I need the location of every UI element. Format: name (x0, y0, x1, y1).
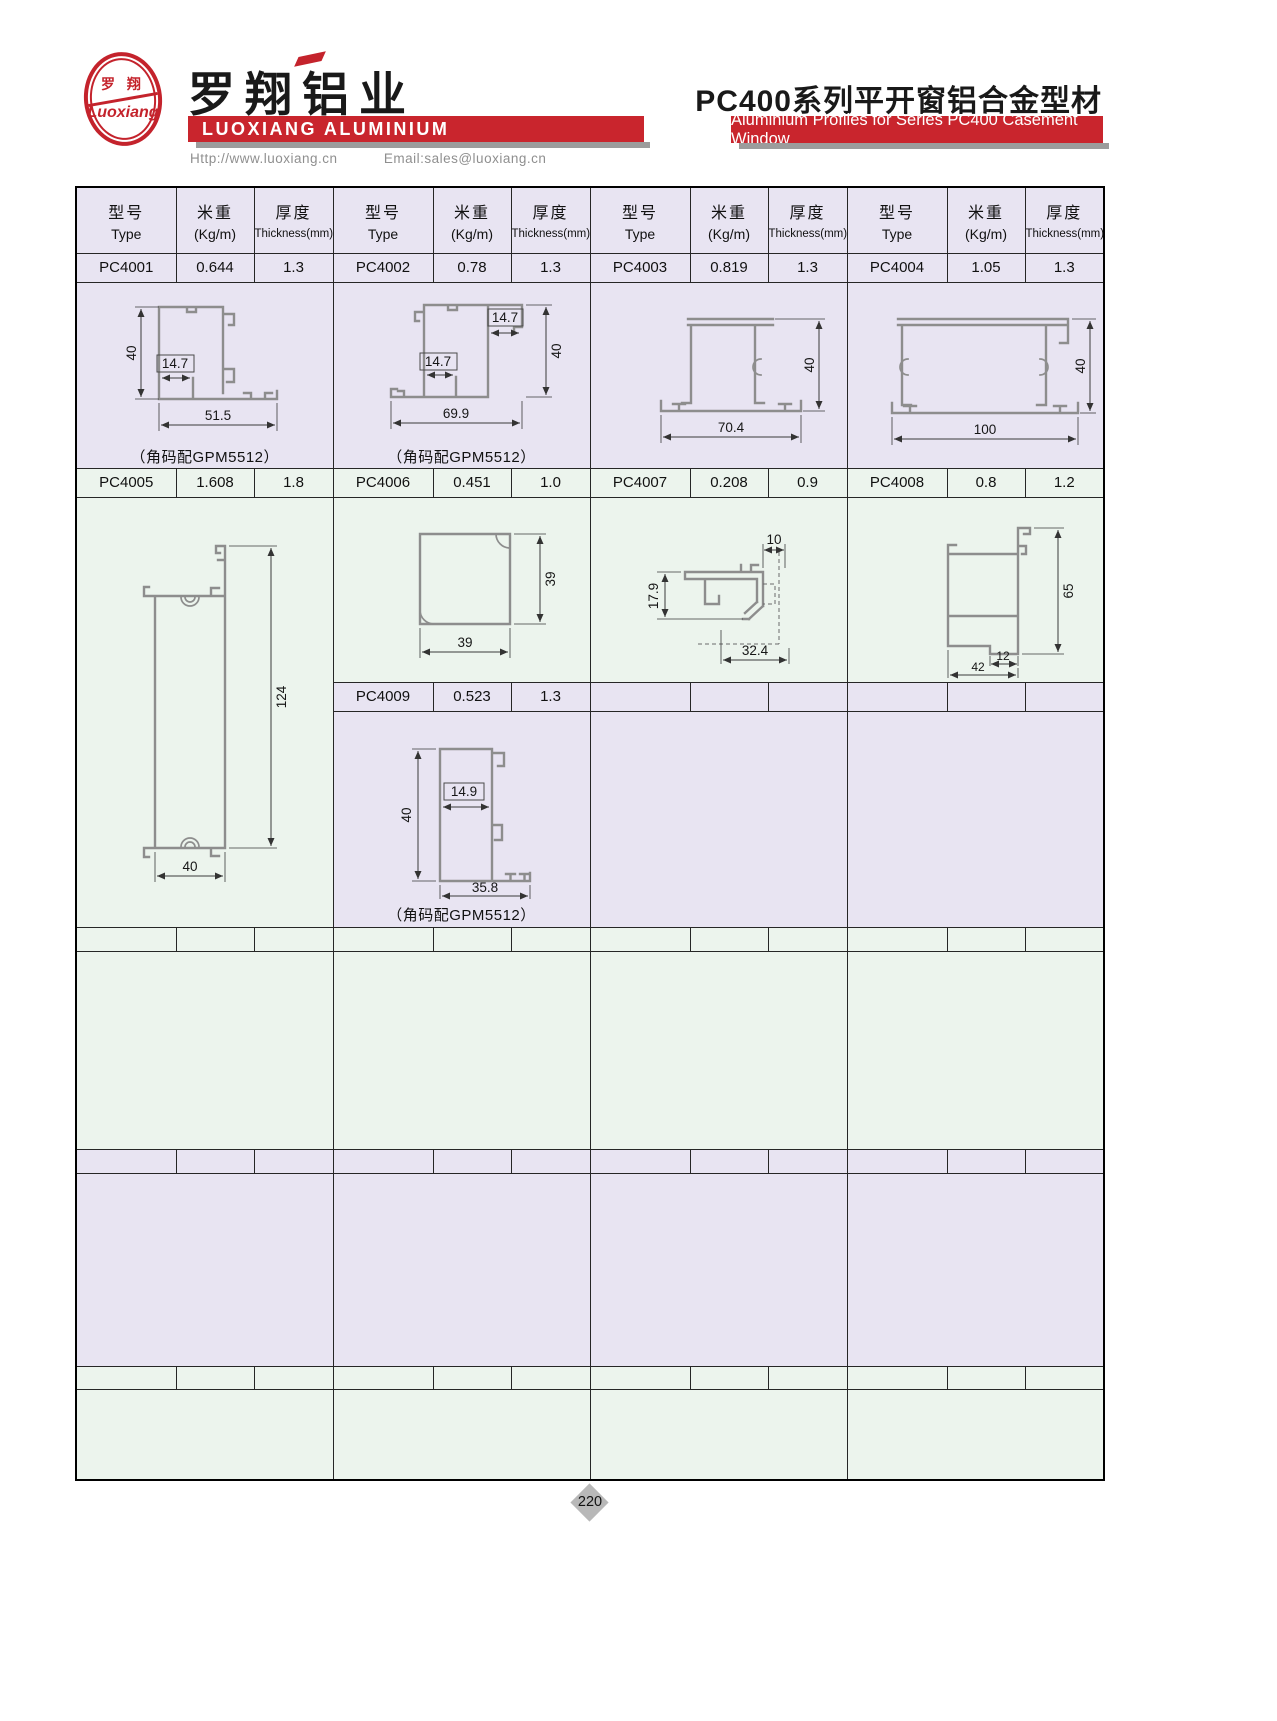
cell-thickness: 1.0 (511, 468, 590, 497)
svg-text:14.9: 14.9 (451, 784, 477, 799)
col-header-weight: 米重(Kg/m) (433, 187, 511, 253)
cell-empty (690, 682, 768, 711)
svg-text:124: 124 (274, 685, 289, 708)
cell-empty (947, 682, 1025, 711)
cell-weight: 0.819 (690, 253, 768, 282)
drawing-caption: （角码配GPM5512） (77, 446, 333, 467)
empty-drawing-row (76, 951, 1104, 1149)
email-address: Email:sales@luoxiang.cn (384, 151, 547, 166)
svg-text:40: 40 (399, 807, 414, 822)
col-header-thickness: 厚度Thickness(mm) (768, 187, 847, 253)
empty-drawing-row (76, 1173, 1104, 1366)
svg-text:39: 39 (543, 571, 558, 586)
svg-text:12: 12 (996, 649, 1010, 663)
empty-strip-row (76, 927, 1104, 951)
drawing-pc4004: 40 100 (847, 282, 1104, 468)
cell-type: PC4009 (333, 682, 433, 711)
cell-thickness: 1.2 (1025, 468, 1104, 497)
cell-thickness: 1.8 (254, 468, 333, 497)
svg-text:39: 39 (457, 635, 472, 650)
contact-line: Http://www.luoxiang.cn Email:sales@luoxi… (190, 151, 546, 166)
empty-drawing-row (76, 1389, 1104, 1480)
company-name-cn: 罗翔铝业 (188, 56, 416, 125)
drawing-pc4007: 17.9 10 32.4 (590, 497, 847, 682)
page-number: 220 (566, 1494, 614, 1510)
cell-weight: 1.608 (176, 468, 254, 497)
cell-type: PC4004 (847, 253, 947, 282)
cell-thickness: 1.3 (511, 253, 590, 282)
col-header-weight: 米重(Kg/m) (690, 187, 768, 253)
svg-text:70.4: 70.4 (718, 420, 745, 435)
cell-weight: 1.05 (947, 253, 1025, 282)
svg-text:35.8: 35.8 (472, 880, 498, 895)
col-header-thickness: 厚度Thickness(mm) (1025, 187, 1104, 253)
data-row-2: PC4005 1.608 1.8 PC4006 0.451 1.0 PC4007… (76, 468, 1104, 497)
svg-text:32.4: 32.4 (742, 643, 769, 658)
drawing-empty (590, 711, 847, 927)
cell-type: PC4008 (847, 468, 947, 497)
drawing-caption: （角码配GPM5512） (334, 446, 590, 467)
catalog-page: 罗 翔 Luoxiang 罗翔铝业 LUOXIANG ALUMINIUM Htt… (0, 0, 1277, 1721)
svg-text:100: 100 (973, 422, 996, 437)
svg-text:17.9: 17.9 (646, 582, 661, 608)
svg-text:14.7: 14.7 (162, 356, 188, 371)
table-header-row: 型号Type 米重(Kg/m) 厚度Thickness(mm) 型号Type 米… (76, 187, 1104, 253)
svg-text:14.7: 14.7 (425, 354, 451, 369)
col-header-type: 型号Type (590, 187, 690, 253)
col-header-weight: 米重(Kg/m) (176, 187, 254, 253)
logo-script-text: Luoxiang (84, 104, 162, 122)
cell-type: PC4002 (333, 253, 433, 282)
sub-bar-shadow (739, 143, 1109, 149)
cell-empty (847, 682, 947, 711)
en-bar-shadow (196, 142, 650, 148)
drawing-row-2: 124 40 39 39 (76, 497, 1104, 682)
website-url: Http://www.luoxiang.cn (190, 151, 338, 166)
col-header-type: 型号Type (333, 187, 433, 253)
drawing-caption: （角码配GPM5512） (334, 904, 590, 925)
empty-strip-row (76, 1366, 1104, 1389)
drawing-pc4003: 40 70.4 (590, 282, 847, 468)
svg-text:40: 40 (183, 859, 198, 874)
col-header-type: 型号Type (76, 187, 176, 253)
cell-weight: 0.523 (433, 682, 511, 711)
drawing-pc4005: 124 40 (76, 497, 333, 927)
svg-text:40: 40 (124, 345, 139, 360)
cell-weight: 0.78 (433, 253, 511, 282)
cell-type: PC4001 (76, 253, 176, 282)
svg-text:40: 40 (1073, 358, 1088, 373)
col-header-weight: 米重(Kg/m) (947, 187, 1025, 253)
cell-empty (590, 682, 690, 711)
logo-cn-text: 罗 翔 (84, 74, 162, 94)
cell-thickness: 1.3 (1025, 253, 1104, 282)
cell-type: PC4006 (333, 468, 433, 497)
series-subtitle-en: Aluminium Profiles for Series PC400 Case… (731, 116, 1103, 143)
drawing-pc4001: 40 14.7 51.5 （角码配GPM5512） (76, 282, 333, 468)
drawing-pc4008: 65 12 42 (847, 497, 1104, 682)
svg-text:42: 42 (971, 660, 985, 674)
svg-text:40: 40 (802, 357, 817, 372)
svg-text:10: 10 (766, 532, 781, 547)
drawing-pc4006: 39 39 (333, 497, 590, 682)
cell-weight: 0.208 (690, 468, 768, 497)
cell-empty (1025, 682, 1104, 711)
cell-thickness: 1.3 (254, 253, 333, 282)
cell-empty (768, 682, 847, 711)
cell-thickness: 1.3 (511, 682, 590, 711)
cell-weight: 0.451 (433, 468, 511, 497)
svg-text:51.5: 51.5 (205, 408, 231, 423)
cell-type: PC4007 (590, 468, 690, 497)
cell-thickness: 1.3 (768, 253, 847, 282)
profile-spec-table: 型号Type 米重(Kg/m) 厚度Thickness(mm) 型号Type 米… (75, 186, 1105, 1481)
drawing-row-1: 40 14.7 51.5 （角码配GPM5512） 14.7 (76, 282, 1104, 468)
company-name-en-bar: LUOXIANG ALUMINIUM (188, 116, 644, 142)
col-header-thickness: 厚度Thickness(mm) (254, 187, 333, 253)
col-header-type: 型号Type (847, 187, 947, 253)
cell-type: PC4003 (590, 253, 690, 282)
col-header-thickness: 厚度Thickness(mm) (511, 187, 590, 253)
drawing-pc4009: 14.9 40 35.8 （角码配GPM5512） (333, 711, 590, 927)
empty-strip-row (76, 1149, 1104, 1173)
cell-thickness: 0.9 (768, 468, 847, 497)
svg-text:14.7: 14.7 (492, 310, 518, 325)
cell-weight: 0.8 (947, 468, 1025, 497)
data-row-1: PC4001 0.644 1.3 PC4002 0.78 1.3 PC4003 … (76, 253, 1104, 282)
drawing-pc4002: 14.7 14.7 40 69.9 （角码配GPM5512） (333, 282, 590, 468)
drawing-empty (847, 711, 1104, 927)
company-logo: 罗 翔 Luoxiang (84, 52, 162, 146)
svg-text:65: 65 (1061, 583, 1076, 598)
cell-weight: 0.644 (176, 253, 254, 282)
svg-text:69.9: 69.9 (443, 406, 469, 421)
cell-type: PC4005 (76, 468, 176, 497)
svg-text:40: 40 (549, 343, 564, 358)
